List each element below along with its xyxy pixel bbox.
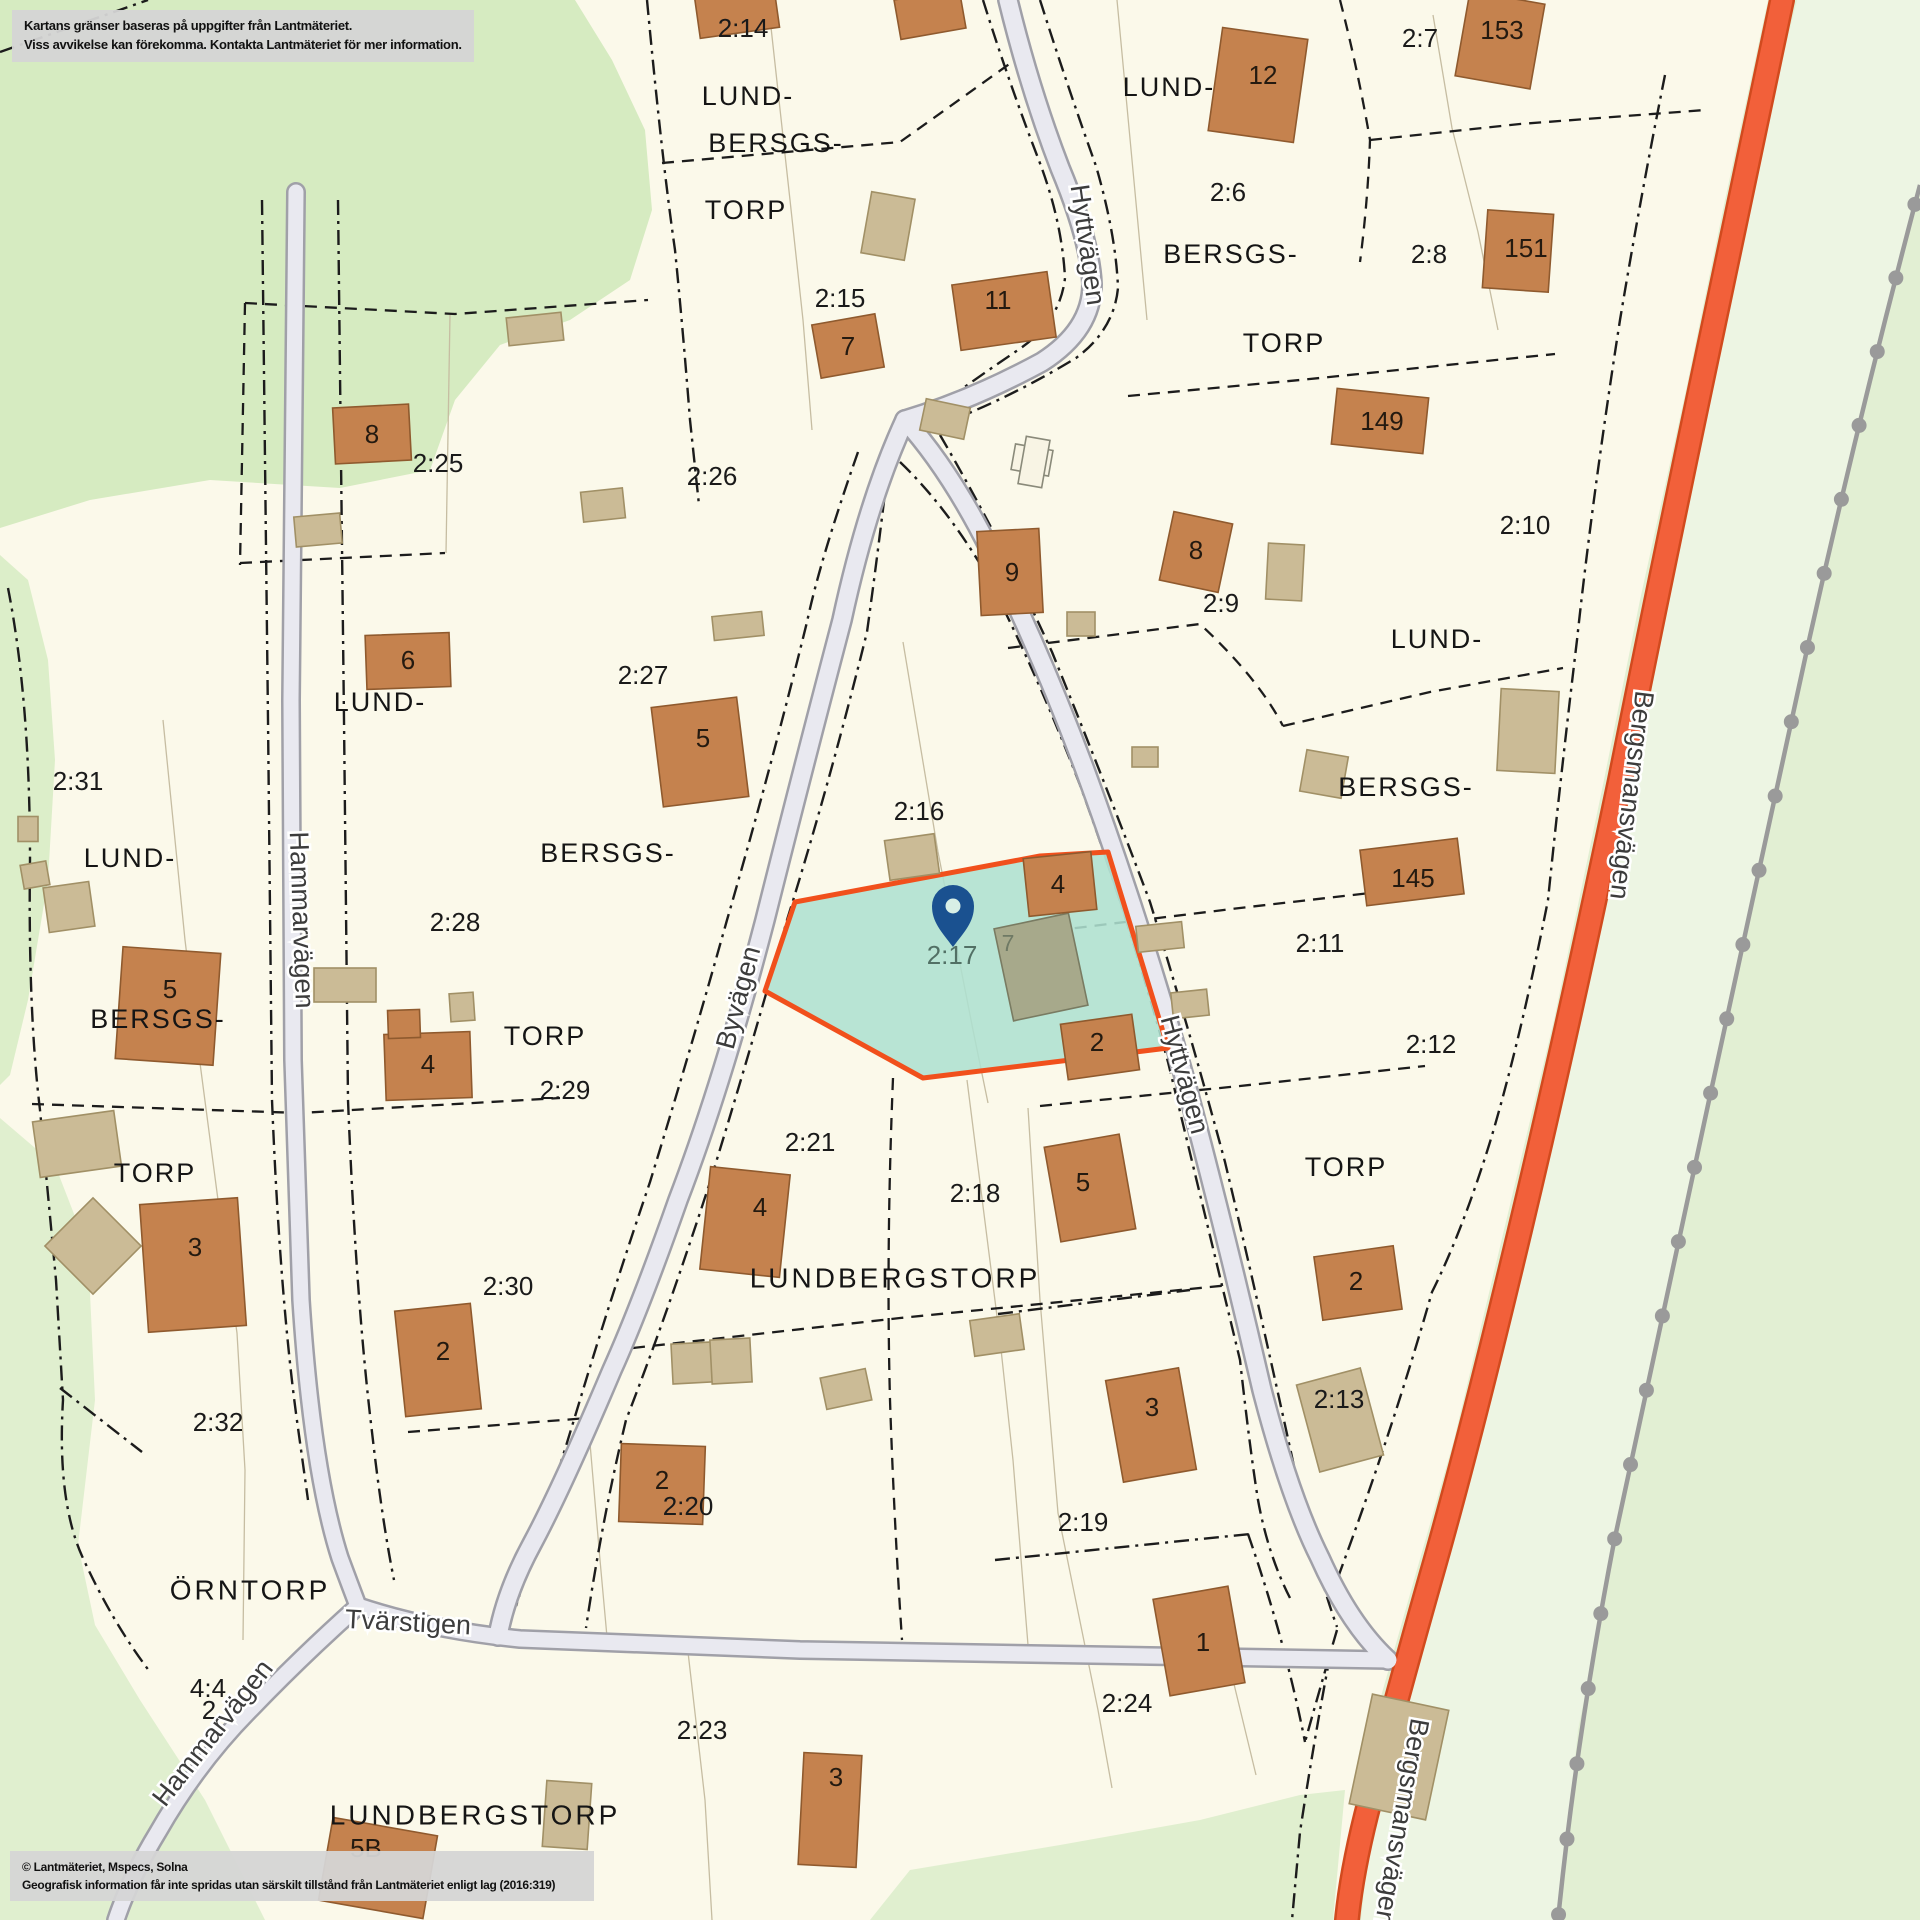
parcel-number-label: 2:31	[53, 766, 104, 796]
railway-dot	[1655, 1308, 1670, 1323]
place-name-label: LUND-	[1391, 624, 1484, 654]
railway-dot	[1888, 270, 1903, 285]
railway-dot	[1687, 1160, 1702, 1175]
railway-dot	[1784, 714, 1799, 729]
place-name-label: TORP	[705, 195, 788, 225]
parcel-number-label: 2:7	[1402, 23, 1438, 53]
parcel-number-label: 2:6	[1210, 177, 1246, 207]
parcel-number-label: 2:20	[663, 1491, 714, 1521]
building-number-label: 3	[188, 1232, 202, 1262]
building-number-label: 8	[365, 419, 379, 449]
outbuilding	[20, 861, 50, 889]
place-name-label: BERSGS-	[1163, 239, 1299, 269]
building-number-label: 5	[1076, 1167, 1090, 1197]
parcel-number-label: 2:28	[430, 907, 481, 937]
building-number-label: 4	[753, 1192, 767, 1222]
parcel-number-label: 2:26	[687, 461, 738, 491]
outbuilding	[43, 882, 95, 933]
parcel-number-label: 2:13	[1314, 1384, 1365, 1414]
parcel-number-label: 2:11	[1296, 928, 1345, 958]
parcel-number-label: 2:16	[894, 796, 945, 826]
parcel-number-label: 2:9	[1203, 588, 1239, 618]
parcel-number-label: 2:23	[677, 1715, 728, 1745]
place-name-label: BERSGS-	[90, 1004, 226, 1034]
road-name-label: Hammarvägen	[284, 831, 320, 1009]
parcel-number-label: 2:15	[815, 283, 866, 313]
railway-dot	[1852, 418, 1867, 433]
building-number-label: 12	[1249, 60, 1278, 90]
railway-dot	[1607, 1531, 1622, 1546]
disclaimer-line2: Viss avvikelse kan förekomma. Kontakta L…	[24, 36, 462, 55]
outbuilding	[506, 312, 564, 346]
map-stage: 7111215315181498956543245232135B145422:1…	[0, 0, 1920, 1920]
outbuilding	[710, 1338, 752, 1384]
map-disclaimer: Kartans gränser baseras på uppgifter frå…	[12, 10, 474, 62]
building	[140, 1198, 247, 1333]
outbuilding	[1497, 689, 1559, 774]
building-number-label: 7	[841, 331, 855, 361]
map-copyright: © Lantmäteriet, Mspecs, Solna Geografisk…	[10, 1851, 594, 1901]
copyright-line1: © Lantmäteriet, Mspecs, Solna	[22, 1858, 582, 1876]
parcel-number-label: 2:24	[1102, 1688, 1153, 1718]
parcel-number-label: 2:18	[950, 1178, 1001, 1208]
building-number-label: 9	[1005, 557, 1019, 587]
location-pin-hole	[946, 899, 961, 914]
parcel-number-label: 7	[1002, 930, 1015, 956]
railway-dot	[1800, 640, 1815, 655]
building-number-label: 11	[985, 285, 1012, 315]
place-name-label: TORP	[1305, 1152, 1388, 1182]
building-number-label: 2	[1090, 1027, 1104, 1057]
place-name-label: TORP	[114, 1158, 197, 1188]
building-number-label: 3	[829, 1762, 843, 1792]
building-number-label: 151	[1504, 233, 1547, 263]
railway-dot	[1559, 1832, 1574, 1847]
building-number-label: 2	[436, 1336, 450, 1366]
outbuilding	[884, 834, 939, 881]
parcel-number-label: 2:32	[193, 1407, 244, 1437]
parcel-number-label: 2:8	[1411, 239, 1447, 269]
building-number-label: 5	[696, 723, 710, 753]
parcel-number-label: 2:12	[1406, 1029, 1457, 1059]
railway-dot	[1719, 1011, 1734, 1026]
railway-dot	[1703, 1086, 1718, 1101]
outbuilding	[1136, 922, 1184, 953]
place-name-label: TORP	[1243, 328, 1326, 358]
place-name-label: LUND-	[334, 687, 427, 717]
railway-dot	[1593, 1606, 1608, 1621]
building-number-label: 1	[1196, 1627, 1210, 1657]
parcel-number-label: 2:25	[413, 448, 464, 478]
railway-dot	[1671, 1234, 1686, 1249]
place-name-label: LUND-	[1123, 72, 1216, 102]
parcel-number-label: 2:14	[718, 13, 769, 43]
outbuilding	[449, 992, 475, 1022]
outbuilding	[671, 1342, 713, 1384]
outbuilding	[1266, 543, 1305, 601]
parcel-number-label: 2:19	[1058, 1507, 1109, 1537]
place-name-label: BERSGS-	[708, 128, 844, 158]
outbuilding	[1067, 612, 1095, 636]
parcel-number-label: 2:30	[483, 1271, 534, 1301]
building-number-label: 149	[1360, 406, 1403, 436]
railway-dot	[1639, 1383, 1654, 1398]
railway-dot	[1735, 937, 1750, 952]
building	[700, 1167, 790, 1278]
outbuilding	[1132, 747, 1158, 767]
map-canvas[interactable]: 7111215315181498956543245232135B145422:1…	[0, 0, 1920, 1920]
outbuilding	[581, 488, 626, 522]
railway-dot	[1623, 1457, 1638, 1472]
outbuilding	[33, 1111, 122, 1178]
railway-dot	[1569, 1756, 1584, 1771]
outbuilding	[314, 968, 376, 1002]
place-name-label: BERSGS-	[540, 838, 676, 868]
place-name-label: LUNDBERGSTORP	[330, 1799, 621, 1830]
railway-dot	[1752, 863, 1767, 878]
building	[388, 1009, 421, 1038]
outbuilding	[18, 817, 38, 842]
outbuilding	[970, 1314, 1025, 1357]
building-number-label: 153	[1480, 15, 1523, 45]
building-number-label: 4	[421, 1049, 435, 1079]
place-name-label: TORP	[504, 1021, 587, 1051]
place-name-label: LUND-	[702, 81, 795, 111]
building-number-label: 4	[1051, 869, 1065, 899]
outbuilding	[294, 513, 342, 547]
place-name-label: LUNDBERGSTORP	[750, 1262, 1041, 1293]
railway-dot	[1834, 492, 1849, 507]
building-number-label: 2	[1349, 1266, 1363, 1296]
disclaimer-line1: Kartans gränser baseras på uppgifter frå…	[24, 17, 462, 36]
copyright-line2: Geografisk information får inte spridas …	[22, 1876, 582, 1894]
outbuilding	[712, 611, 764, 640]
parcel-number-label: 2:21	[785, 1127, 836, 1157]
building-number-label: 3	[1145, 1392, 1159, 1422]
railway-dot	[1870, 344, 1885, 359]
parcel-number-label: 2:27	[618, 660, 669, 690]
parcel-number-label: 2:10	[1500, 510, 1551, 540]
building-number-label: 8	[1189, 535, 1203, 565]
railway-dot	[1581, 1681, 1596, 1696]
place-name-label: ÖRNTORP	[170, 1574, 331, 1605]
building-number-label: 145	[1391, 863, 1434, 893]
place-name-label: BERSGS-	[1338, 772, 1474, 802]
railway-dot	[1768, 789, 1783, 804]
railway-dot	[1817, 566, 1832, 581]
place-name-label: LUND-	[84, 843, 177, 873]
building-number-label: 5	[163, 974, 177, 1004]
building-number-label: 6	[401, 645, 415, 675]
parcel-number-label: 2:29	[540, 1075, 591, 1105]
